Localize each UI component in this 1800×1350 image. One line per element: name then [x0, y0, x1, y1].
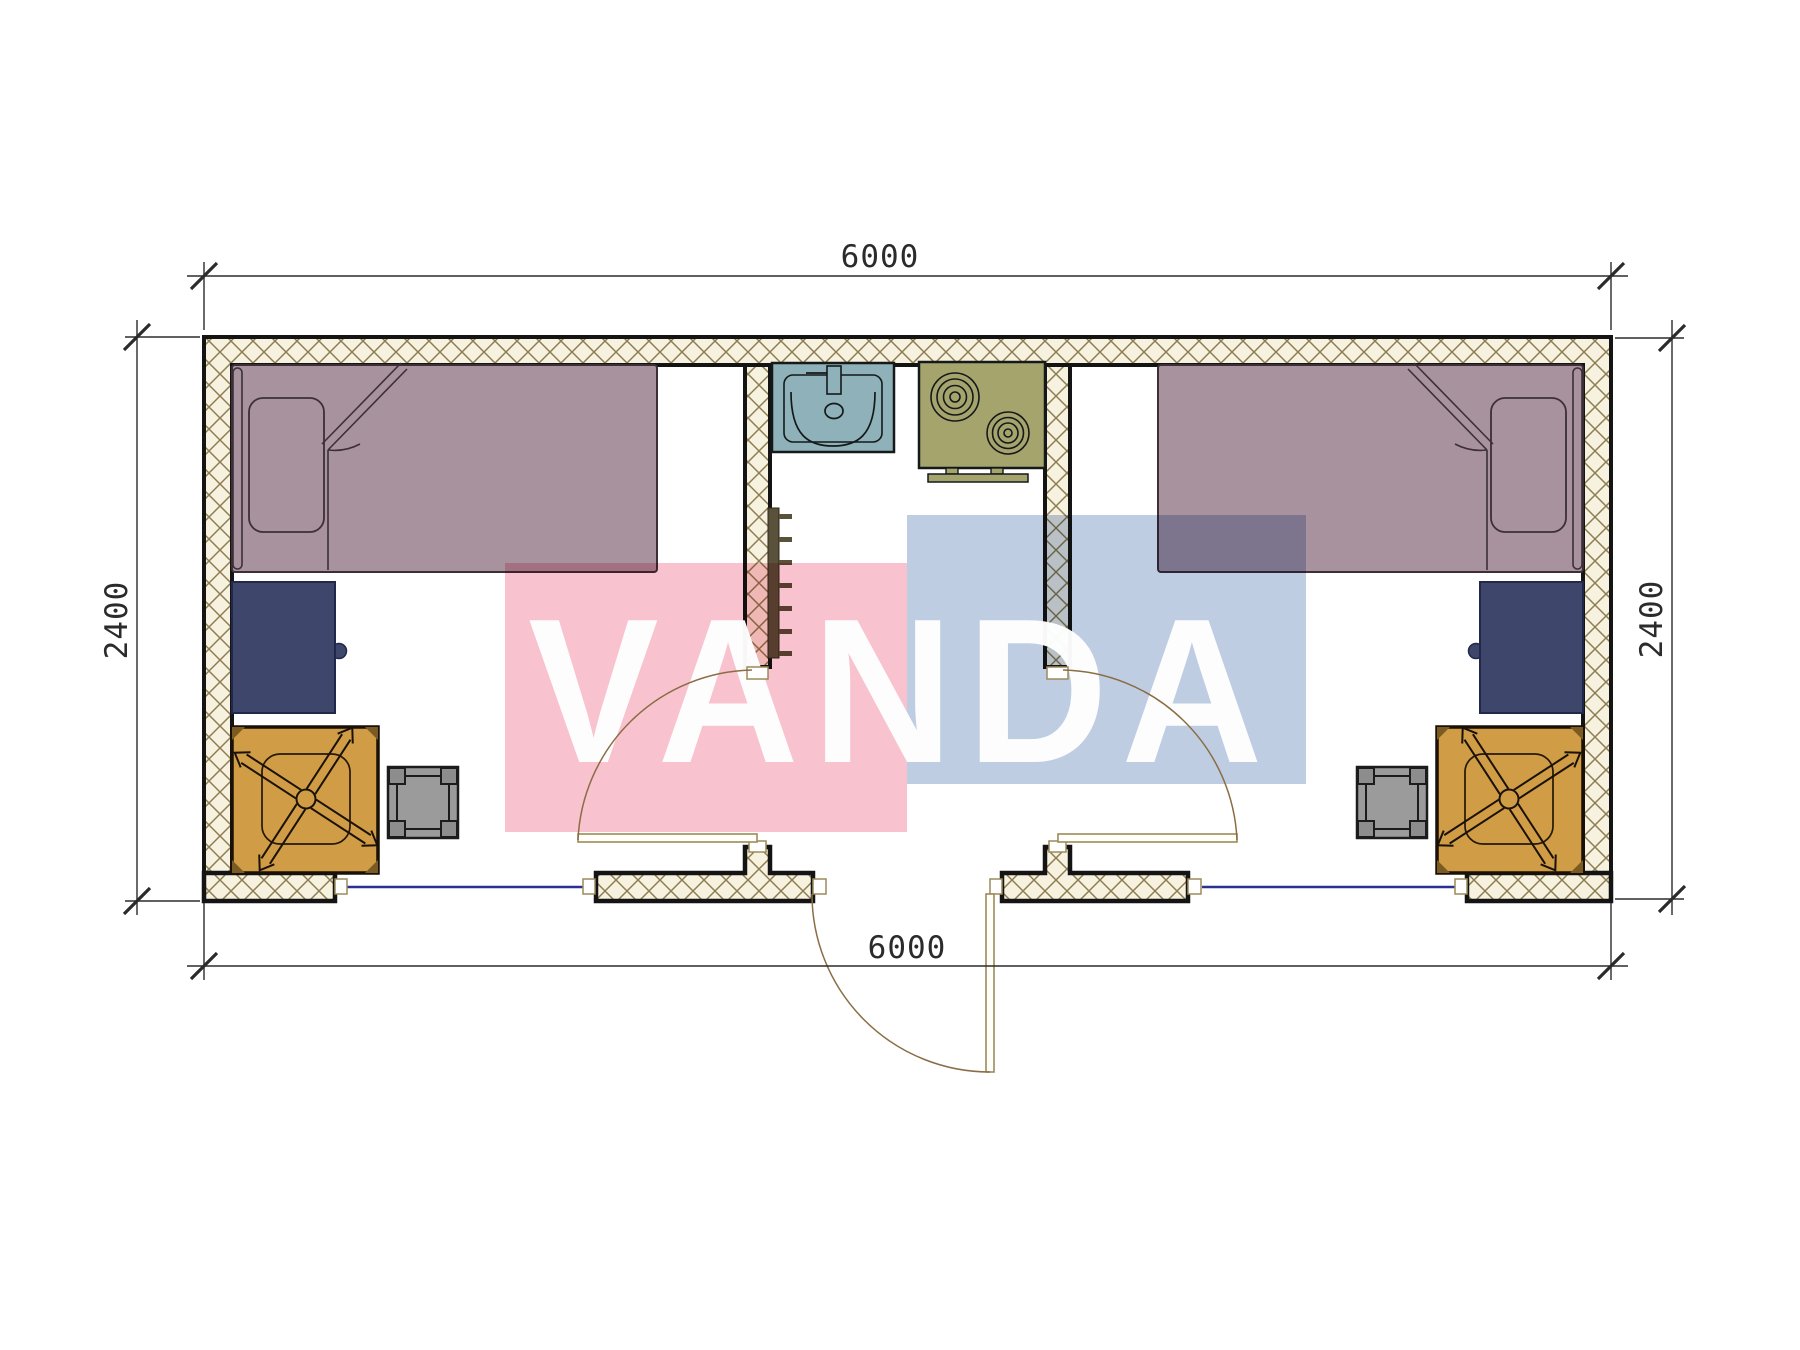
corner-block-right [1467, 873, 1611, 901]
floor-plan-canvas: VANDA [0, 0, 1800, 1350]
bed-frame-rail [233, 368, 242, 569]
watermark-text: VANDA [528, 575, 1276, 806]
swing-arc-entry [812, 894, 990, 1072]
dimension-right-value: 2400 [1634, 580, 1670, 659]
dimension-top: 6000 [187, 239, 1628, 330]
dimension-left: 2400 [99, 320, 200, 915]
door-leaf-room-right [1058, 834, 1237, 842]
stove [919, 362, 1045, 482]
bed-frame-rail [1573, 368, 1582, 569]
pillow-left [249, 398, 324, 532]
stool-left [388, 767, 458, 838]
corner-block-left [204, 873, 335, 901]
dimension-left-value: 2400 [99, 581, 135, 660]
dimension-right: 2400 [1615, 320, 1685, 915]
sink [772, 363, 894, 452]
desk-left [232, 582, 347, 713]
pillow-right [1491, 398, 1566, 532]
pier-right [1002, 847, 1188, 901]
pier-left [596, 847, 813, 901]
bed-left [232, 363, 657, 572]
door-leaf-room-left [578, 834, 757, 842]
stool-right [1357, 767, 1427, 838]
floor-plan-page: VANDA [0, 0, 1800, 1350]
stove-handle [928, 474, 1028, 482]
dimension-bottom-value: 6000 [868, 930, 947, 966]
dimension-bottom: 6000 [187, 903, 1628, 980]
faucet [827, 366, 841, 394]
dimension-top-value: 6000 [841, 239, 920, 275]
desk-right [1469, 582, 1584, 713]
door-leaf-entry [986, 894, 994, 1072]
